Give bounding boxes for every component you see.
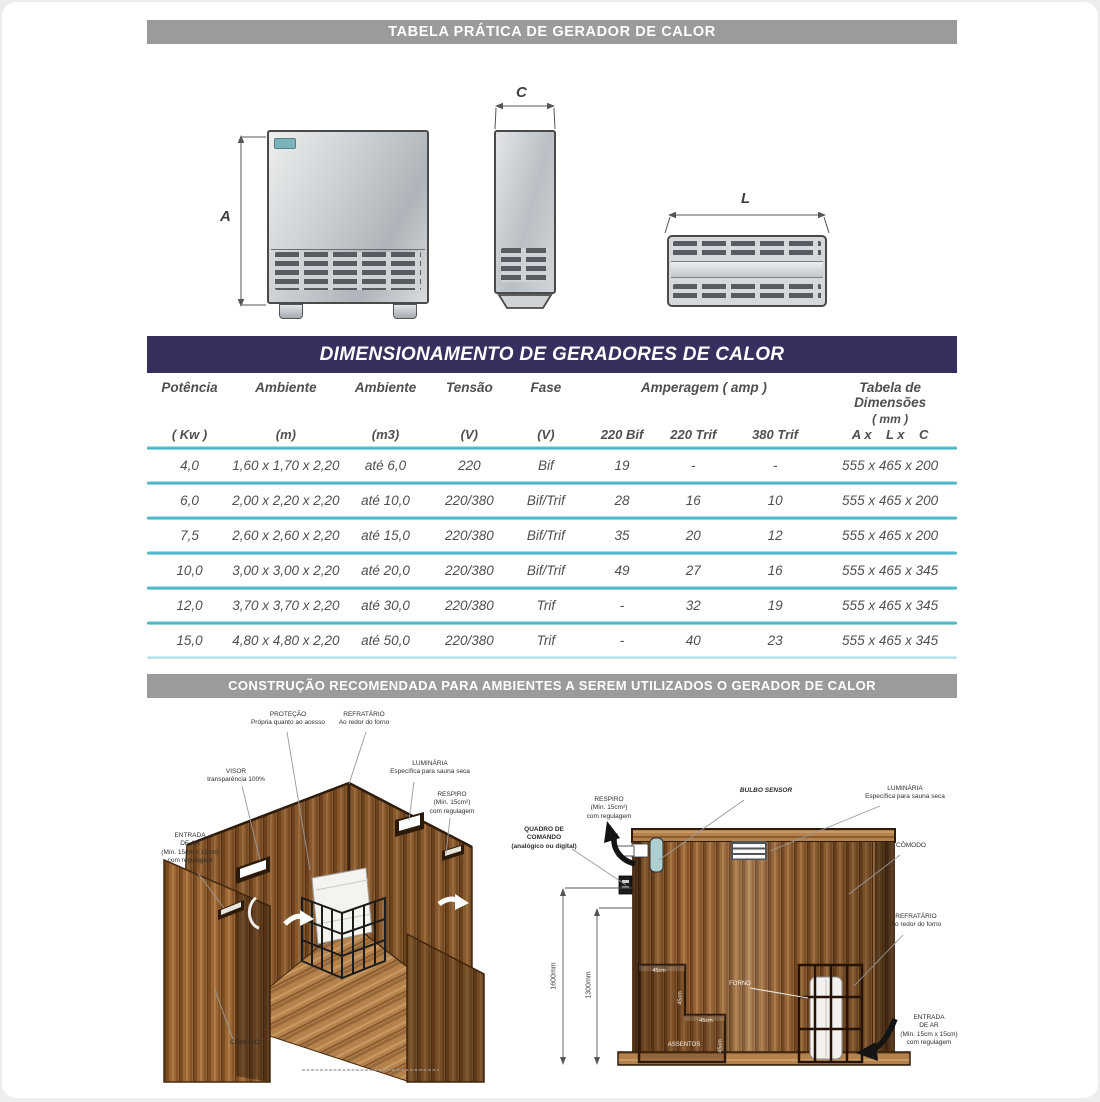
side-base xyxy=(499,295,551,308)
cell-tensao: 220/380 xyxy=(431,598,507,613)
cell-220bif: 28 xyxy=(584,493,659,508)
panel-divider xyxy=(271,249,425,250)
front-foot-left xyxy=(279,304,303,319)
cell-220trif: 32 xyxy=(660,598,727,613)
cell-ambiente-m3: até 20,0 xyxy=(340,563,432,578)
bulb-sensor xyxy=(650,838,663,872)
dim-line-1600 xyxy=(560,888,632,1065)
side-vent-grille xyxy=(501,248,549,282)
cell-220bif: 19 xyxy=(584,458,659,473)
heater-unit xyxy=(312,868,372,944)
spec-table: Potência ( Kw ) Ambiente (m) Ambiente (m… xyxy=(147,380,957,659)
cell-potencia: 12,0 xyxy=(147,598,232,613)
cell-ambiente-m3: até 30,0 xyxy=(340,598,432,613)
cell-fase: Trif xyxy=(507,633,584,648)
cell-220trif: 16 xyxy=(660,493,727,508)
cell-ambiente-m3: até 6,0 xyxy=(340,458,432,473)
top-vent-band-lower xyxy=(673,284,821,301)
cell-dimensoes: 555 x 465 x 345 xyxy=(823,563,957,578)
cell-ambiente-m: 1,60 x 1,70 x 2,20 xyxy=(232,458,340,473)
label-luminaria-right: LUMINÁRIA Específica para sauna seca xyxy=(865,785,945,802)
section-banner-construcao: CONSTRUÇÃO RECOMENDADA PARA AMBIENTES A … xyxy=(147,674,957,698)
label-refratario-left: REFRATÁRIO Ao redor do forno xyxy=(339,711,390,728)
label-refratario-right: REFRATÁRIO Ao redor do forno xyxy=(891,913,942,930)
cell-220trif: 20 xyxy=(660,528,727,543)
table-row: 12,0 3,70 x 3,70 x 2,20 até 30,0 220/380… xyxy=(147,590,957,621)
top-banner-title: TABELA PRÁTICA DE GERADOR DE CALOR xyxy=(147,20,957,44)
front-view-drawing xyxy=(267,130,429,304)
label-comodo-right: CÔMODO xyxy=(896,842,926,850)
cell-380trif: 12 xyxy=(727,528,823,543)
respiro-duct xyxy=(617,844,648,857)
cell-ambiente-m: 2,60 x 2,60 x 2,20 xyxy=(232,528,340,543)
label-dim-1600mm: 1600mm xyxy=(549,962,558,989)
brand-badge xyxy=(274,138,296,149)
protective-grid xyxy=(302,898,385,978)
col-header-dimensoes: Tabela de Dimensões ( mm ) A x L x C xyxy=(823,380,957,442)
cell-tensao: 220 xyxy=(431,458,507,473)
cell-tensao: 220/380 xyxy=(431,493,507,508)
forno-leader xyxy=(750,988,808,998)
control-panel-box xyxy=(619,876,632,894)
front-foot-right xyxy=(393,304,417,319)
row-separator xyxy=(147,656,957,659)
air-inlet-slot xyxy=(218,900,244,920)
label-bench-dim: 45cm xyxy=(652,968,665,975)
cell-potencia: 7,5 xyxy=(147,528,232,543)
cell-dimensoes: 555 x 465 x 200 xyxy=(823,458,957,473)
dim-line-c xyxy=(495,103,555,129)
cell-220bif: - xyxy=(584,633,659,648)
col-header-ambiente-m: Ambiente (m) xyxy=(232,380,340,442)
table-row: 15,0 4,80 x 4,80 x 2,20 até 50,0 220/380… xyxy=(147,625,957,656)
table-row: 7,5 2,60 x 2,60 x 2,20 até 15,0 220/380 … xyxy=(147,520,957,551)
sauna-isometric-illustration xyxy=(152,692,552,1092)
label-bench-dim: 45cm xyxy=(717,1039,724,1052)
cell-ambiente-m3: até 10,0 xyxy=(340,493,432,508)
label-forno: FORNO xyxy=(729,981,751,989)
label-luminaria-left: LUMINÁRIA Específica para sauna seca xyxy=(390,760,470,777)
cell-dimensoes: 555 x 465 x 345 xyxy=(823,633,957,648)
cell-tensao: 220/380 xyxy=(431,563,507,578)
cell-ambiente-m: 2,00 x 2,20 x 2,20 xyxy=(232,493,340,508)
cell-220bif: 49 xyxy=(584,563,659,578)
datasheet-page: TABELA PRÁTICA DE GERADOR DE CALOR DIMEN… xyxy=(2,2,1098,1098)
table-row: 6,0 2,00 x 2,20 x 2,20 até 10,0 220/380 … xyxy=(147,485,957,516)
cell-380trif: 10 xyxy=(727,493,823,508)
dim-label-c: C xyxy=(516,84,527,101)
cell-potencia: 6,0 xyxy=(147,493,232,508)
wall-vent xyxy=(395,812,424,837)
cell-380trif: - xyxy=(727,458,823,473)
col-header-ambiente-m3: Ambiente (m3) xyxy=(340,380,432,442)
col-header-potencia: Potência ( Kw ) xyxy=(147,380,232,442)
cell-220bif: - xyxy=(584,598,659,613)
cell-220trif: 40 xyxy=(660,633,727,648)
cell-dimensoes: 555 x 465 x 200 xyxy=(823,528,957,543)
heater-unit xyxy=(810,977,842,1059)
airflow-arrow-icon xyxy=(249,894,469,928)
label-bulbo-sensor: BULBO SENSOR xyxy=(740,787,792,795)
section-banner-dimensionamento: DIMENSIONAMENTO DE GERADORES DE CALOR xyxy=(147,336,957,373)
cell-potencia: 10,0 xyxy=(147,563,232,578)
top-view-drawing xyxy=(667,235,827,307)
leader-lines xyxy=(198,732,903,1042)
front-vent-grille xyxy=(275,252,421,290)
label-quadro-comando: QUADRO DE COMANDO (analógico ou digital) xyxy=(511,826,576,851)
cell-potencia: 15,0 xyxy=(147,633,232,648)
dim-label-l: L xyxy=(741,190,750,207)
col-header-tensao: Tensão (V) xyxy=(431,380,507,442)
label-comodo-left: CÔMODO xyxy=(230,1039,260,1047)
respiro-slot xyxy=(442,844,464,861)
top-middle-band xyxy=(671,261,823,278)
cell-ambiente-m: 3,00 x 3,00 x 2,20 xyxy=(232,563,340,578)
cell-fase: Bif/Trif xyxy=(507,528,584,543)
side-view-drawing xyxy=(494,130,556,294)
label-bench-dim: 45cm xyxy=(677,991,684,1004)
cell-fase: Trif xyxy=(507,598,584,613)
dim-line-l xyxy=(665,212,829,233)
heater-grid xyxy=(799,965,862,1062)
cell-ambiente-m: 4,80 x 4,80 x 2,20 xyxy=(232,633,340,648)
cell-380trif: 16 xyxy=(727,563,823,578)
dim-line-1300 xyxy=(594,908,632,1065)
dim-line-a xyxy=(238,135,266,307)
cell-dimensoes: 555 x 465 x 345 xyxy=(823,598,957,613)
label-respiro-right: RESPIRO (Mín. 15cm²) com regulagem xyxy=(587,796,632,821)
col-header-fase: Fase (V) xyxy=(507,380,584,442)
cell-potencia: 4,0 xyxy=(147,458,232,473)
label-dim-1300mm: 1300mm xyxy=(584,971,593,998)
label-respiro-left: RESPIRO (Mín. 15cm²) com regulagem xyxy=(430,791,475,816)
cell-ambiente-m3: até 50,0 xyxy=(340,633,432,648)
cell-dimensoes: 555 x 465 x 200 xyxy=(823,493,957,508)
label-entrada-ar-right: ENTRADA DE AR (Mín. 15cm x 15cm) com reg… xyxy=(900,1014,957,1048)
airflow-arrow-icon xyxy=(604,821,895,1061)
cell-ambiente-m3: até 15,0 xyxy=(340,528,432,543)
cell-tensao: 220/380 xyxy=(431,528,507,543)
cell-220bif: 35 xyxy=(584,528,659,543)
cell-380trif: 23 xyxy=(727,633,823,648)
cell-ambiente-m: 3,70 x 3,70 x 2,20 xyxy=(232,598,340,613)
luminaire-fixture xyxy=(731,841,767,860)
spec-table-header: Potência ( Kw ) Ambiente (m) Ambiente (m… xyxy=(147,380,957,446)
cell-220trif: - xyxy=(660,458,727,473)
top-vent-band-upper xyxy=(673,241,821,258)
cell-tensao: 220/380 xyxy=(431,633,507,648)
cell-fase: Bif/Trif xyxy=(507,493,584,508)
label-bench-dim: 45cm xyxy=(699,1018,712,1025)
cell-220trif: 27 xyxy=(660,563,727,578)
label-assentos: ASSENTOS xyxy=(668,1042,701,1050)
cell-380trif: 19 xyxy=(727,598,823,613)
label-entrada-ar-left: ENTRADA DE AR (Mín. 15cm x 15cm) com reg… xyxy=(161,832,218,866)
table-row: 10,0 3,00 x 3,00 x 2,20 até 20,0 220/380… xyxy=(147,555,957,586)
table-row: 4,0 1,60 x 1,70 x 2,20 até 6,0 220 Bif 1… xyxy=(147,450,957,481)
cell-fase: Bif/Trif xyxy=(507,563,584,578)
label-visor: VISOR transparência 100% xyxy=(207,768,265,785)
cell-fase: Bif xyxy=(507,458,584,473)
dim-label-a: A xyxy=(220,208,231,225)
col-group-amperagem: Amperagem ( amp ) xyxy=(584,380,823,395)
visor-window xyxy=(236,856,270,884)
label-protecao: PROTEÇÃO Própria quanto ao acesso xyxy=(251,711,325,728)
